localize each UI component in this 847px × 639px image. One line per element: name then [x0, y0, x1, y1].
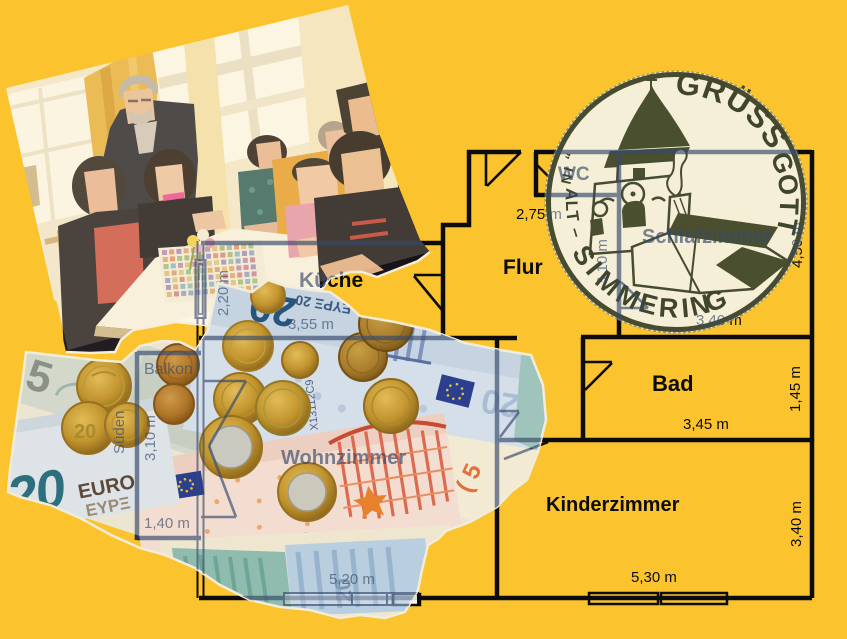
svg-text:T: T [774, 198, 805, 216]
svg-text:R: R [658, 292, 680, 323]
svg-text:G: G [674, 66, 702, 103]
svg-text:20: 20 [74, 421, 96, 443]
